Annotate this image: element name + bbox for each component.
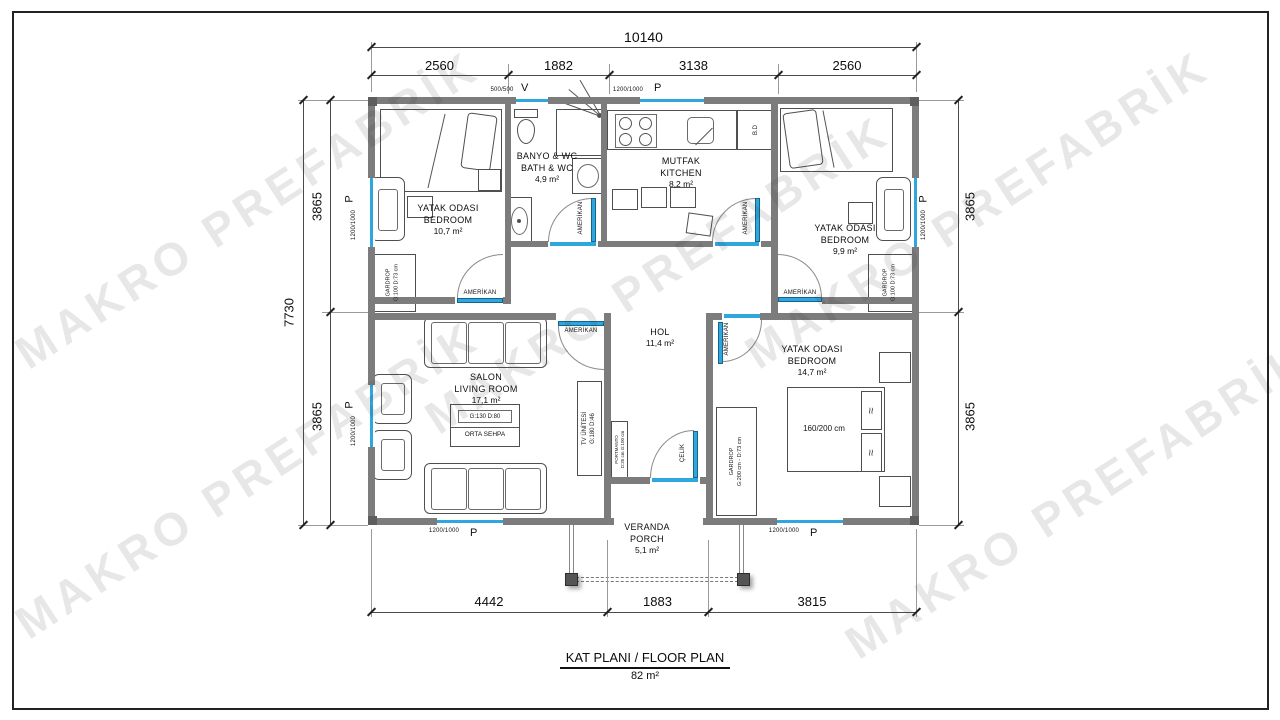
dim-top-seg3: 3138 [609, 58, 778, 73]
door-type-label: AMERİKAN [778, 290, 822, 296]
window-bedroom1-left [368, 178, 375, 247]
room-subtitle: BEDROOM [398, 214, 498, 226]
window-size-label: 1200/1000 [606, 87, 650, 93]
dim-top-seg4: 2560 [778, 58, 916, 73]
sofa-cushion [468, 322, 504, 364]
sofa-cushion [505, 468, 541, 510]
burner [619, 133, 632, 146]
window-bedroom2-right [912, 178, 919, 247]
room-title: SALON [436, 371, 536, 383]
wardrobe-name: GARDROP [883, 269, 890, 297]
wardrobe-size: G:100 D:73 cm [890, 264, 897, 301]
sofa-cushion [505, 322, 541, 364]
burner [639, 117, 652, 130]
room-area: 5,1 m² [612, 545, 682, 556]
armchair-living-1 [372, 374, 412, 424]
dim-ext [916, 529, 917, 617]
window-glass [777, 520, 843, 523]
coffee-table: G:130 D:80 ORTA SEHPA [450, 404, 520, 447]
room-area: 10,7 m² [398, 226, 498, 237]
dim-ext [298, 100, 368, 101]
window-size-label: 1200/1000 [422, 528, 466, 534]
coffee-table-name: ORTA SEHPA [451, 431, 519, 438]
kitchen-sink [687, 117, 714, 144]
door-bedroom3-threshold [724, 314, 760, 318]
room-title: HOL [630, 326, 690, 338]
wardrobe-bedroom1-label: GARDROP G:100 D:73 cm [371, 254, 416, 312]
wall-exterior-right [912, 97, 919, 525]
window-glass [516, 99, 548, 102]
window-glass [640, 99, 704, 102]
dim-left-total: 7730 [282, 283, 297, 343]
tv-unit-size: G:180 D:46 [590, 413, 598, 444]
room-area: 14,7 m² [762, 367, 862, 378]
room-area: 11,4 m² [630, 338, 690, 349]
wardrobe-size: G:100 D:73 cm [393, 264, 400, 301]
room-subtitle: BATH & WC [507, 162, 587, 174]
window-code-p: P [810, 527, 817, 539]
room-title: YATAK ODASI [398, 202, 498, 214]
door-type-label: AMERİKAN [578, 198, 584, 238]
room-subtitle: PORCH [612, 533, 682, 545]
sofa-top [424, 317, 547, 368]
porch-post-line [573, 525, 574, 578]
wardrobe-name: GARDROP [386, 269, 393, 297]
faucet-line [695, 128, 713, 146]
room-label-living: SALON LIVING ROOM 17,1 m² [436, 371, 536, 407]
wall-bedroom1-south-b [503, 297, 511, 304]
refrigerator-code: B.D [753, 125, 761, 135]
room-subtitle: BEDROOM [795, 234, 895, 246]
tv-unit-name: TV ÜNİTESİ [582, 412, 590, 445]
nightstand-bedroom3-bottom [879, 476, 911, 507]
coffee-table-size: G:130 D:80 [458, 410, 512, 423]
table-divider [451, 427, 519, 428]
door-entrance-arc [650, 430, 694, 478]
wall-living-hall [604, 313, 611, 525]
porch-post-line [569, 525, 570, 578]
window-code-p: P [470, 527, 477, 539]
floor-plan-canvas: MAKRO PREFABRİK MAKRO PREFABRİK MAKRO PR… [0, 0, 1280, 720]
window-code-v: V [521, 82, 528, 94]
window-size-label: 1200/1000 [351, 408, 357, 454]
window-code-p: P [918, 195, 930, 202]
wall-living-north-a [368, 313, 556, 320]
plan-title: KAT PLANI / FLOOR PLAN [560, 650, 730, 669]
room-label-bedroom3: YATAK ODASI BEDROOM 14,7 m² [762, 343, 862, 379]
room-subtitle: KITCHEN [641, 167, 721, 179]
porch-edge-dashed [571, 581, 743, 582]
pillow-bedroom3-2: ≈ [861, 433, 882, 472]
door-bathroom-leaf [591, 198, 596, 242]
wall-bathroom-kitchen [601, 104, 607, 247]
door-bathroom-threshold [550, 242, 596, 246]
window-glass [914, 178, 917, 247]
plan-total-area: 82 m² [560, 670, 730, 682]
dim-right-seg2: 3865 [963, 387, 978, 447]
door-bedroom1-leaf [457, 298, 503, 303]
door-type-label: AMERİKAN [457, 290, 503, 296]
room-label-hall: HOL 11,4 m² [630, 326, 690, 350]
wardrobe-size: G:200 cm - D:73 cm [737, 437, 744, 486]
door-kitchen-threshold [715, 242, 759, 246]
sofa-bottom [424, 463, 547, 514]
wall-entrance-b [700, 477, 713, 484]
dim-ext [298, 525, 368, 526]
window-code-p: P [344, 401, 356, 408]
dim-top-seg2: 1882 [508, 58, 609, 73]
door-type-label: ÇELİK [680, 433, 686, 473]
toilet-tank [514, 109, 538, 118]
wardrobe-bedroom2-label: GARDROP G:100 D:73 cm [868, 254, 913, 312]
door-bedroom3-leaf [718, 322, 723, 364]
window-glass [370, 178, 373, 247]
stove [615, 114, 657, 148]
door-entrance-threshold [652, 478, 698, 482]
dim-line [371, 612, 916, 613]
room-title: MUTFAK [641, 155, 721, 167]
porch-post-line [743, 525, 744, 578]
sofa-cushion [468, 468, 504, 510]
coat-rack-size: D:35 cm G:100 cm [620, 431, 626, 469]
wall-bedroom3-north-a [706, 313, 722, 320]
dim-bottom-seg3: 3815 [708, 594, 916, 609]
pillow-glyph: ≈ [853, 443, 890, 462]
tv-unit-label: TV ÜNİTESİ G:180 D:46 [577, 381, 602, 476]
window-size-label: 500/500 [487, 87, 517, 93]
nightstand-bedroom1 [478, 169, 501, 191]
dim-line [371, 47, 916, 48]
dim-top-seg1: 2560 [371, 58, 508, 73]
dim-line [303, 100, 304, 525]
refrigerator-label: B.D [737, 110, 777, 150]
wardrobe-bedroom3-label: GARDROP G:200 cm - D:73 cm [716, 407, 757, 516]
window-glass [370, 385, 373, 447]
wall-bedroom3-north-b [760, 313, 919, 320]
room-area: 4,9 m² [507, 174, 587, 185]
room-title: YATAK ODASI [795, 222, 895, 234]
dim-left-seg1: 3865 [310, 177, 325, 237]
wall-bedroom1-bathroom [505, 104, 511, 304]
armchair-seat [381, 439, 405, 471]
toilet-bowl [517, 119, 535, 144]
window-living-left [368, 385, 375, 447]
corner-post [368, 516, 377, 525]
door-bathroom-arc [548, 198, 592, 242]
dim-ext [916, 42, 917, 92]
wall-entrance-a [611, 477, 650, 484]
wall-bathroom-south-a [505, 241, 548, 247]
room-label-kitchen: MUTFAK KITCHEN 8,2 m² [641, 155, 721, 191]
sink-drain [517, 219, 521, 223]
room-label-veranda: VERANDA PORCH 5,1 m² [612, 521, 682, 557]
window-bedroom3-bottom [777, 518, 843, 525]
room-title: BANYO & WC [507, 150, 587, 162]
nightstand-bedroom3-top [879, 352, 911, 383]
room-label-bathroom: BANYO & WC BATH & WC 4,9 m² [507, 150, 587, 186]
porch-column [737, 573, 750, 586]
room-title: YATAK ODASI [762, 343, 862, 355]
kitchen-counter [607, 110, 737, 150]
corner-post [910, 516, 919, 525]
wardrobe-name: GARDROP [729, 448, 736, 476]
armchair-living-2 [372, 430, 412, 480]
dim-bottom-seg2: 1883 [607, 594, 708, 609]
kitchen-chair [612, 189, 638, 210]
shower-cabin [556, 109, 606, 156]
window-code-p: P [654, 82, 661, 94]
porch-column [565, 573, 578, 586]
armchair-seat [378, 189, 398, 231]
dim-right-seg1: 3865 [963, 177, 978, 237]
window-kitchen [640, 97, 704, 104]
door-entrance-leaf [693, 431, 698, 478]
porch-edge-dashed [571, 577, 743, 578]
corner-post [368, 97, 377, 106]
sofa-cushion [431, 468, 467, 510]
window-size-label: 1200/1000 [762, 528, 806, 534]
window-code-p: P [344, 195, 356, 202]
room-subtitle: LIVING ROOM [436, 383, 536, 395]
burner [639, 133, 652, 146]
room-area: 17,1 m² [436, 395, 536, 406]
door-living-leaf [558, 321, 604, 326]
window-bathroom [516, 97, 548, 104]
dim-top-total: 10140 [371, 29, 916, 45]
wall-kitchen-south-b [761, 241, 778, 247]
room-area: 8,2 m² [641, 179, 721, 190]
door-type-label: AMERİKAN [724, 319, 730, 359]
wall-hall-bedroom3 [706, 313, 713, 525]
dim-line [371, 75, 916, 76]
door-type-label: AMERİKAN [558, 328, 604, 334]
dim-left-seg2: 3865 [310, 387, 325, 447]
porch-post-line [739, 525, 740, 578]
wall-kitchen-south-a [598, 241, 713, 247]
room-title: VERANDA [612, 521, 682, 533]
door-bedroom2-leaf [778, 297, 822, 302]
pillow-bedroom3-1: ≈ [861, 391, 882, 430]
door-kitchen-arc [712, 198, 756, 242]
window-size-label: 1200/1000 [351, 202, 357, 248]
coat-rack-label: PORTMANTO D:35 cm G:100 cm [611, 421, 628, 478]
pillow-glyph: ≈ [853, 401, 890, 420]
door-type-label: AMERİKAN [743, 198, 749, 238]
room-label-bedroom2: YATAK ODASI BEDROOM 9,9 m² [795, 222, 895, 258]
desk-bedroom2 [848, 202, 873, 224]
burner [619, 117, 632, 130]
window-size-label: 1200/1000 [921, 202, 927, 248]
room-label-bedroom1: YATAK ODASI BEDROOM 10,7 m² [398, 202, 498, 238]
sofa-cushion [431, 322, 467, 364]
bed-size-label: 160/200 cm [789, 424, 859, 433]
room-subtitle: BEDROOM [762, 355, 862, 367]
dim-bottom-seg1: 4442 [371, 594, 607, 609]
door-kitchen-leaf [755, 198, 760, 242]
corner-post [910, 97, 919, 106]
armchair-seat [381, 383, 405, 415]
window-glass [437, 520, 503, 523]
window-living-bottom [437, 518, 503, 525]
kitchen-chair [686, 212, 714, 236]
